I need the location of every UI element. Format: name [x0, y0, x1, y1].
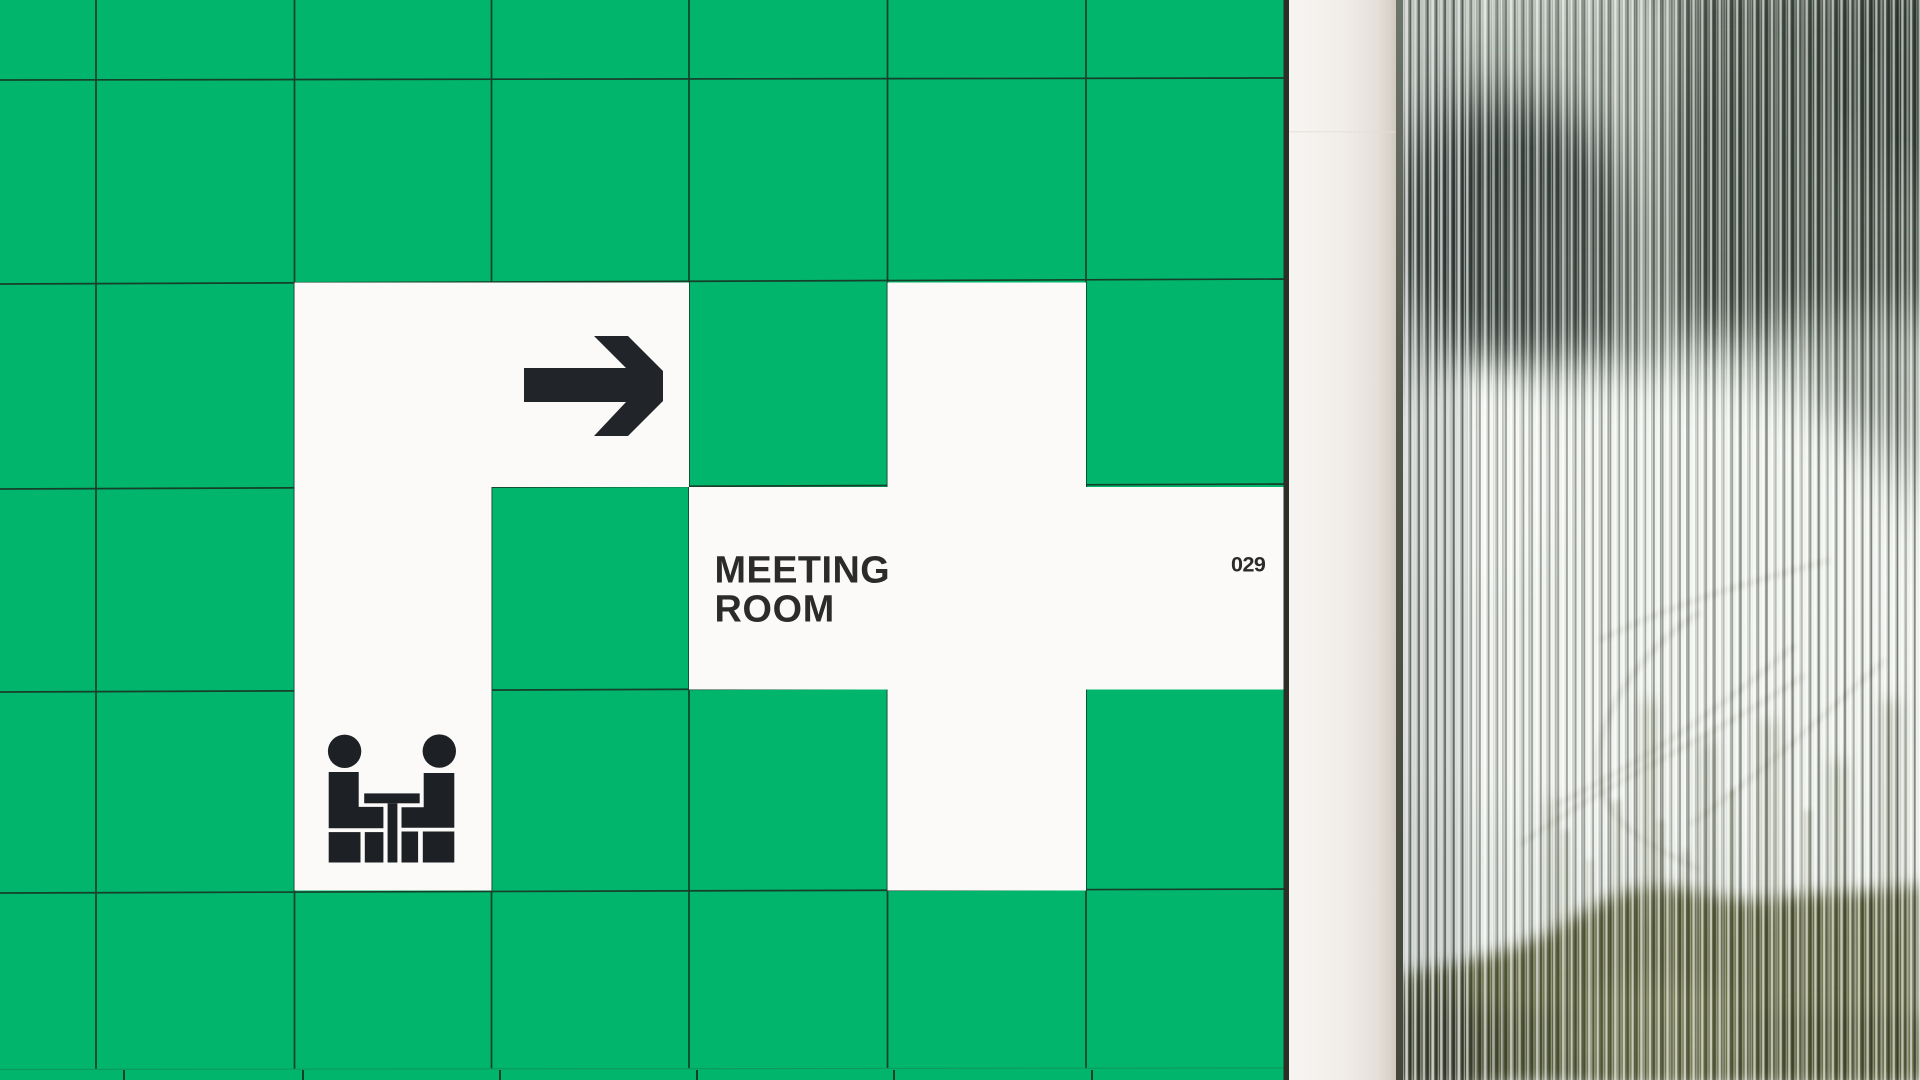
svg-text:MEETING: MEETING: [715, 549, 891, 591]
svg-text:029: 029: [1231, 552, 1266, 576]
svg-text:ROOM: ROOM: [715, 588, 835, 630]
